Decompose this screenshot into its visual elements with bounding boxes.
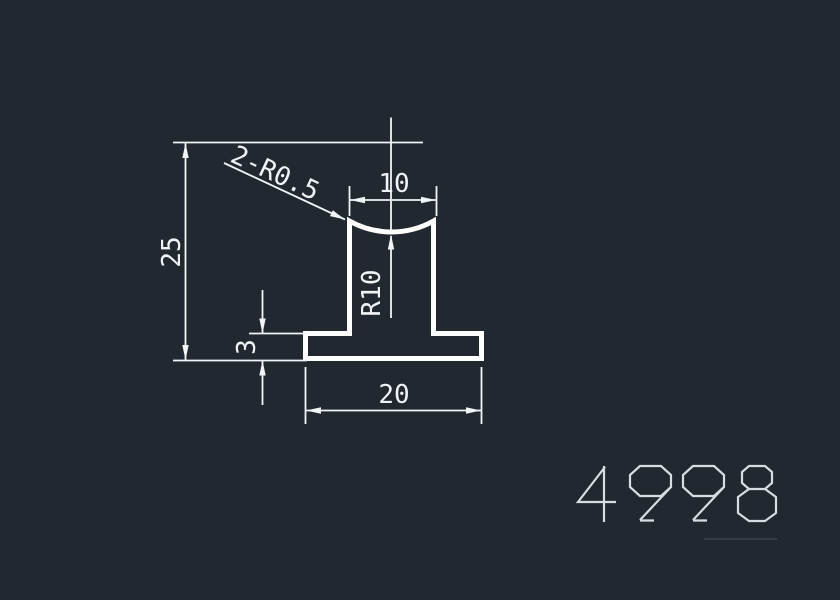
dim-topwidth-arrow-right bbox=[421, 197, 436, 203]
dim-height-arrow-top bbox=[182, 143, 188, 158]
dim-topwidth-arrow-left bbox=[350, 197, 365, 203]
dim-basewidth-arrow-left bbox=[306, 407, 321, 413]
part-number-digit-9b bbox=[683, 466, 724, 521]
profile-outline bbox=[306, 221, 482, 359]
part-number-digit-8 bbox=[738, 466, 776, 521]
drawing-canvas: 25 10 R10 3 20 2-R0.5 bbox=[0, 0, 840, 600]
part-number-digit-9a bbox=[630, 466, 671, 521]
part-number bbox=[578, 466, 776, 522]
dim-radius-arrow bbox=[388, 235, 394, 250]
dim-height-arrow-bottom bbox=[182, 345, 188, 360]
dim-thickness-text: 3 bbox=[232, 339, 262, 355]
dim-radius-text: R10 bbox=[357, 270, 387, 317]
dim-topwidth-text: 10 bbox=[378, 169, 409, 199]
dim-basewidth-text: 20 bbox=[378, 380, 409, 410]
part-number-digit-4 bbox=[578, 466, 616, 522]
cad-drawing: 25 10 R10 3 20 2-R0.5 bbox=[0, 0, 840, 600]
dim-basewidth-arrow-right bbox=[466, 407, 481, 413]
leader-arrow-corner-radii bbox=[330, 210, 345, 219]
dim-thickness-arrow-top bbox=[259, 319, 265, 334]
leader-text-corner-radii: 2-R0.5 bbox=[226, 140, 324, 207]
dim-thickness-arrow-bottom bbox=[259, 361, 265, 376]
dim-height-text: 25 bbox=[157, 236, 187, 267]
